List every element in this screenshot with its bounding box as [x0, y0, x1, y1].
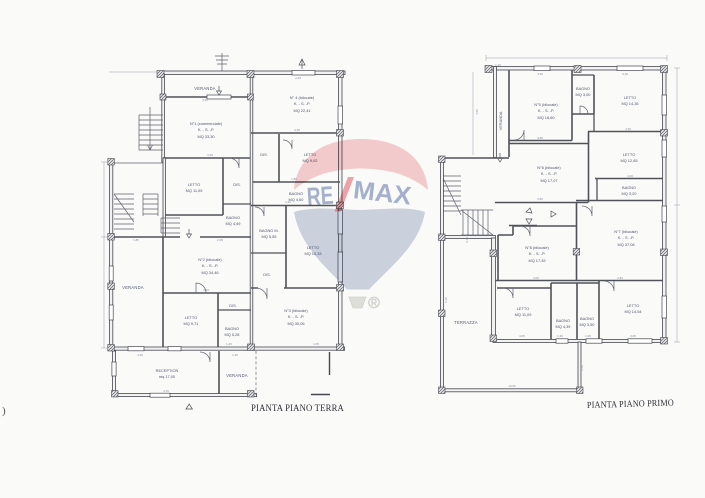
svg-text:VERANDA: VERANDA	[122, 285, 144, 290]
svg-text:BAGNO: BAGNO	[226, 215, 240, 220]
svg-text:1,25: 1,25	[226, 342, 232, 346]
svg-text:1,65: 1,65	[313, 342, 319, 346]
svg-text:VERANDA: VERANDA	[194, 86, 216, 91]
svg-text:4,35: 4,35	[207, 153, 213, 157]
svg-text:MQ 11,09: MQ 11,09	[515, 312, 532, 317]
svg-text:4,20: 4,20	[285, 200, 291, 204]
svg-text:4,00: 4,00	[533, 276, 539, 280]
svg-text:MQ 30,06: MQ 30,06	[287, 321, 304, 326]
svg-text:N°8 (bilocale): N°8 (bilocale)	[525, 245, 549, 250]
svg-text:MQ 3,50: MQ 3,50	[580, 322, 596, 327]
svg-text:MQ 12,65: MQ 12,65	[620, 158, 637, 163]
svg-text:MQ 34,46: MQ 34,46	[201, 270, 218, 275]
svg-text:RECEPTION: RECEPTION	[156, 368, 179, 373]
svg-text:): )	[2, 405, 6, 417]
svg-text:3,80: 3,80	[537, 197, 543, 201]
svg-text:K. - S. -P.: K. - S. -P.	[198, 127, 214, 132]
svg-text:N°6 (bilocale): N°6 (bilocale)	[537, 165, 561, 170]
svg-text:DIS.: DIS.	[233, 182, 241, 187]
svg-text:MQ 4,39: MQ 4,39	[556, 324, 571, 329]
svg-text:3,85: 3,85	[537, 136, 543, 140]
svg-text:N°2 (bilocale): N°2 (bilocale)	[198, 257, 222, 262]
svg-text:MQ 4,60: MQ 4,60	[289, 197, 305, 202]
svg-text:MQ 16,60: MQ 16,60	[537, 115, 555, 120]
svg-text:K. - S. -P.: K. - S. -P.	[618, 235, 634, 240]
svg-text:4,05: 4,05	[630, 334, 636, 338]
svg-text:LETTO: LETTO	[517, 306, 529, 311]
svg-text:DIS.: DIS.	[263, 272, 271, 277]
svg-text:MQ 3,20: MQ 3,20	[622, 191, 638, 196]
svg-text:MQ 3,00: MQ 3,00	[576, 92, 592, 97]
svg-text:MQ 14,54: MQ 14,54	[624, 309, 642, 314]
svg-text:K. - S. -P.: K. - S. -P.	[202, 263, 218, 268]
svg-text:VERANDA: VERANDA	[498, 111, 503, 130]
svg-text:MQ 5,28: MQ 5,28	[225, 332, 240, 337]
svg-text:K. - S. -P.: K. - S. -P.	[288, 314, 304, 319]
svg-text:4,30: 4,30	[294, 128, 300, 132]
svg-text:BAGNO M.: BAGNO M.	[259, 228, 278, 233]
svg-text:4,70: 4,70	[465, 237, 469, 243]
svg-text:2,50: 2,50	[580, 365, 584, 371]
svg-text:14,50: 14,50	[508, 384, 516, 388]
svg-text:MQ 37,08: MQ 37,08	[617, 242, 634, 247]
svg-text:BAGNO: BAGNO	[580, 316, 594, 321]
svg-text:LETTO: LETTO	[627, 303, 639, 308]
svg-text:N°1 (commerciale): N°1 (commerciale)	[190, 121, 223, 126]
svg-text:4,30: 4,30	[295, 76, 301, 80]
svg-text:1,30: 1,30	[557, 334, 563, 338]
svg-text:RE: RE	[306, 182, 334, 212]
svg-text:MQ 17,07: MQ 17,07	[540, 178, 557, 183]
svg-text:4,30: 4,30	[202, 98, 208, 102]
svg-text:4,10: 4,10	[622, 72, 628, 76]
svg-text:MQ 14,35: MQ 14,35	[621, 101, 638, 106]
svg-text:8,30: 8,30	[444, 297, 448, 303]
svg-text:3,90: 3,90	[537, 72, 543, 76]
svg-text:BAGNO: BAGNO	[556, 318, 570, 323]
svg-text:K. - S. -P.: K. - S. -P.	[541, 171, 557, 176]
svg-text:BAGNO: BAGNO	[289, 191, 303, 196]
svg-text:K. - S. -P.: K. - S. -P.	[294, 101, 310, 106]
svg-text:2,84: 2,84	[617, 276, 623, 280]
svg-text:MQ 22,41: MQ 22,41	[293, 108, 310, 113]
svg-text:4,05: 4,05	[519, 334, 525, 338]
svg-text:N°5 (bilocale): N°5 (bilocale)	[534, 102, 558, 107]
svg-text:1,20: 1,20	[495, 63, 501, 67]
svg-text:MQ 5,55: MQ 5,55	[262, 234, 277, 239]
svg-text:N° 4 (bilocale): N° 4 (bilocale)	[290, 95, 315, 100]
svg-text:mq 17,00: mq 17,00	[159, 374, 176, 379]
svg-text:2,35: 2,35	[217, 238, 223, 242]
svg-text:4,15: 4,15	[163, 389, 169, 393]
svg-text:MQ 9,71: MQ 9,71	[184, 321, 199, 326]
svg-text:DIS.: DIS.	[260, 152, 268, 157]
svg-text:1,66: 1,66	[585, 334, 591, 338]
svg-text:PIANTA PIANO TERRA: PIANTA PIANO TERRA	[251, 404, 344, 414]
svg-text:BAGNO: BAGNO	[576, 86, 590, 91]
svg-text:TERRAZZA: TERRAZZA	[454, 320, 478, 325]
svg-text:LETTO: LETTO	[624, 95, 636, 100]
svg-text:LETTO: LETTO	[185, 315, 197, 320]
svg-text:4,20: 4,20	[203, 288, 209, 292]
svg-text:MQ 33,30: MQ 33,30	[197, 134, 215, 139]
svg-text:1,80: 1,80	[291, 177, 297, 181]
svg-text:4,30: 4,30	[625, 127, 631, 131]
svg-text:LETTO: LETTO	[623, 152, 635, 157]
svg-text:VERANDA: VERANDA	[226, 373, 248, 378]
svg-text:MQ 17,45: MQ 17,45	[528, 258, 545, 263]
svg-text:N°3 (bilocale): N°3 (bilocale)	[284, 308, 308, 313]
svg-text:DIS.: DIS.	[229, 303, 237, 308]
svg-text:K. - S. -P.: K. - S. -P.	[529, 251, 545, 256]
svg-text:MQ 11,05: MQ 11,05	[186, 188, 203, 193]
svg-text:MQ 4,49: MQ 4,49	[226, 221, 241, 226]
svg-text:BAGNO: BAGNO	[225, 326, 239, 331]
svg-text:N°7 (bilocale): N°7 (bilocale)	[614, 229, 638, 234]
svg-text:4,50: 4,50	[475, 109, 479, 115]
svg-text:4,00: 4,00	[627, 174, 633, 178]
svg-text:1,45: 1,45	[232, 353, 238, 357]
svg-text:K. - S. -P.: K. - S. -P.	[538, 108, 554, 113]
svg-text:BAGNO: BAGNO	[622, 185, 636, 190]
svg-text:LETTO: LETTO	[188, 182, 200, 187]
svg-text:4,30: 4,30	[137, 353, 143, 357]
svg-text:1,85: 1,85	[133, 238, 139, 242]
